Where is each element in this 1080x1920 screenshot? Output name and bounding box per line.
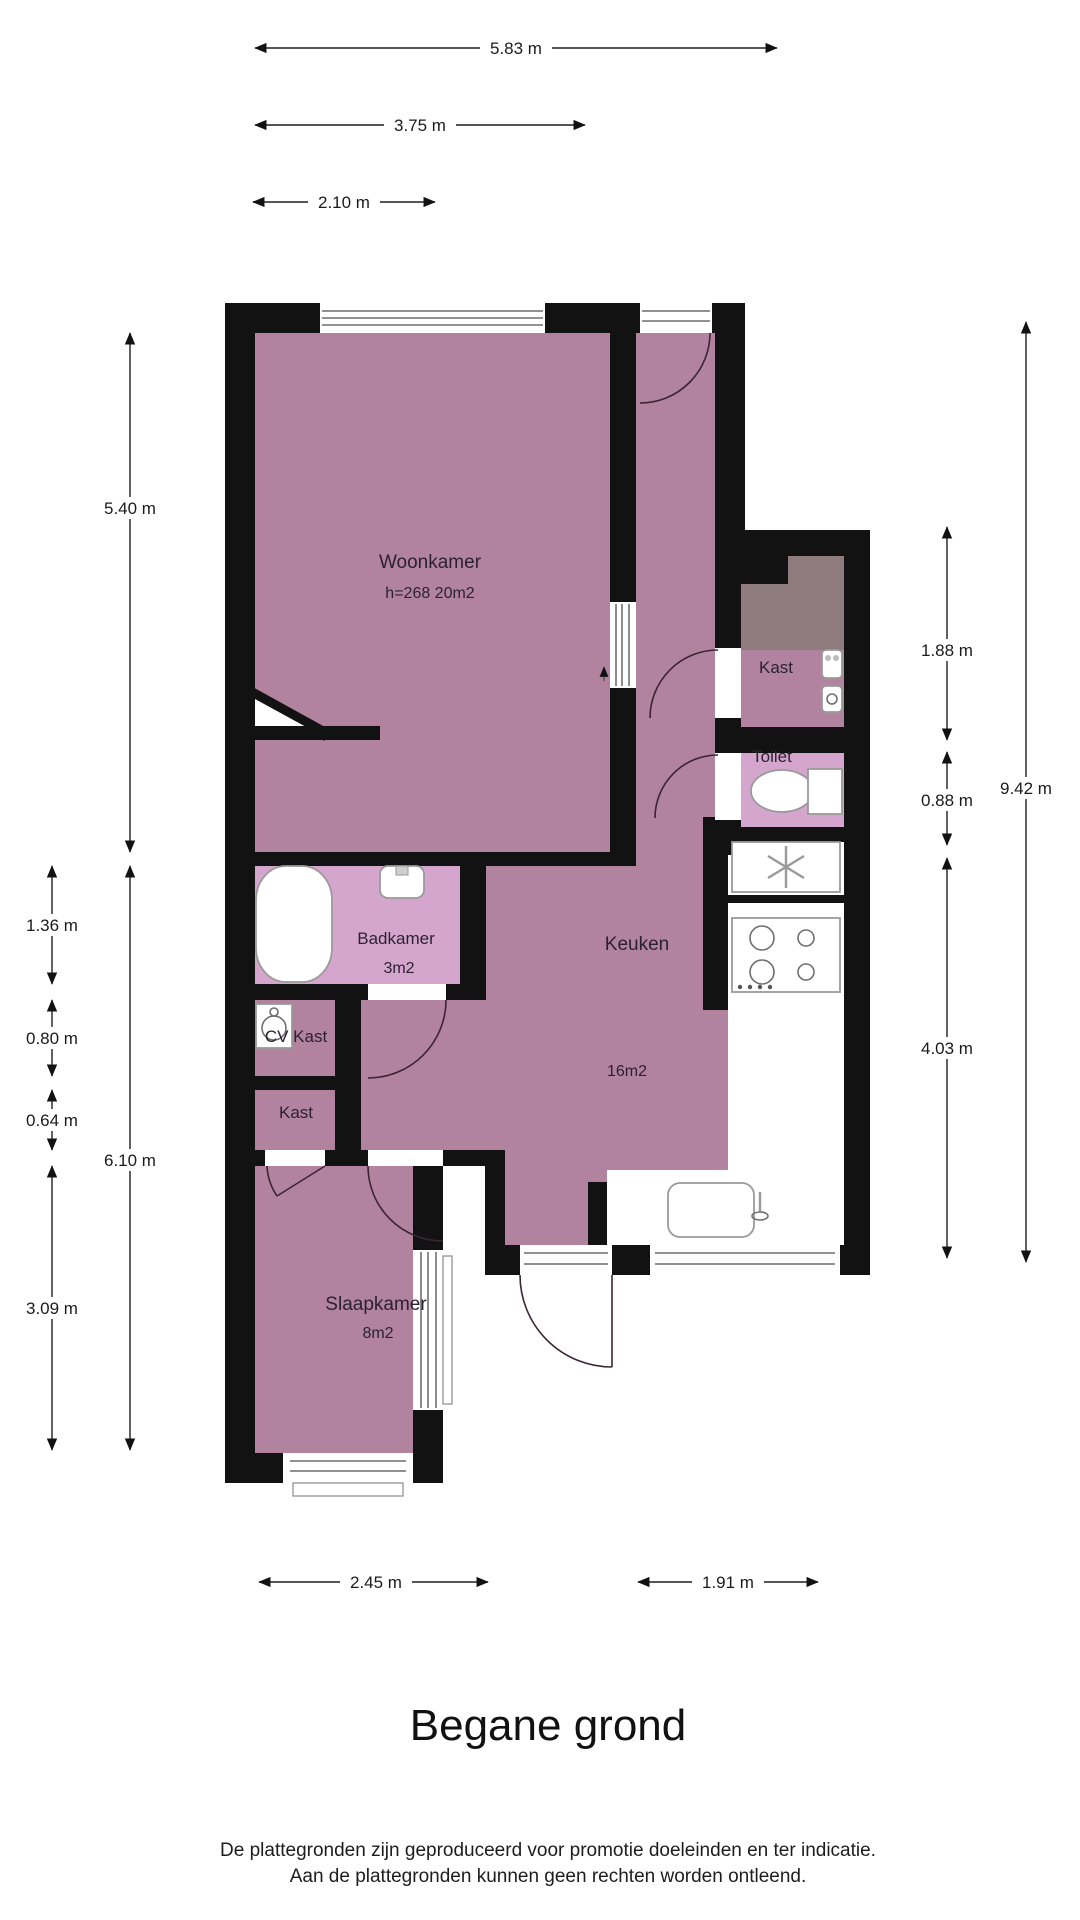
label-woonkamer-details: h=268 20m2 xyxy=(385,585,475,602)
wall-badkamer-bottom xyxy=(225,984,486,1000)
disclaimer-line-1: De plattegronden zijn geproduceerd voor … xyxy=(220,1840,876,1861)
svg-text:6.10 m: 6.10 m xyxy=(104,1151,156,1170)
dim-bottom-1-91: 1.91 m xyxy=(638,1571,818,1593)
label-woonkamer: Woonkamer xyxy=(379,552,482,573)
wall-kitchen-inner xyxy=(703,817,728,1010)
svg-text:2.10 m: 2.10 m xyxy=(318,193,370,212)
dim-right-1-88: 1.88 m xyxy=(911,527,983,740)
dim-left-0-80: 0.80 m xyxy=(16,1000,88,1076)
dim-right-0-88: 0.88 m xyxy=(911,752,983,845)
slaapkamer-window-bottom xyxy=(283,1453,413,1496)
kitchen-exterior-door xyxy=(520,1245,612,1367)
svg-text:0.88 m: 0.88 m xyxy=(921,791,973,810)
dim-left-6-10: 6.10 m xyxy=(94,866,166,1450)
wall-left xyxy=(225,303,255,1483)
svg-text:0.64 m: 0.64 m xyxy=(26,1111,78,1130)
kitchen-window xyxy=(650,1245,840,1275)
svg-text:5.40 m: 5.40 m xyxy=(104,499,156,518)
wall-under-fridge xyxy=(728,895,844,903)
label-cv-kast: CV Kast xyxy=(265,1027,328,1046)
dim-top-3-75: 3.75 m xyxy=(255,114,585,136)
dim-top-5-83: 5.83 m xyxy=(255,37,777,59)
dim-left-1-36: 1.36 m xyxy=(16,866,88,984)
slaapkamer-window-right xyxy=(413,1250,452,1410)
floorplan-page: Woonkamer h=268 20m2 Keuken 16m2 Slaapka… xyxy=(0,0,1080,1920)
wall-right-upper xyxy=(715,303,745,556)
floor-plan: Woonkamer h=268 20m2 Keuken 16m2 Slaapka… xyxy=(0,0,1080,1920)
hal-glazed-panel xyxy=(610,602,636,688)
svg-text:1.88 m: 1.88 m xyxy=(921,641,973,660)
label-keuken-area: 16m2 xyxy=(607,1063,647,1080)
svg-text:4.03 m: 4.03 m xyxy=(921,1039,973,1058)
svg-text:5.83 m: 5.83 m xyxy=(490,39,542,58)
floor-areas xyxy=(255,333,844,1453)
wall-extension-right xyxy=(844,530,870,1275)
dim-left-0-64: 0.64 m xyxy=(16,1090,88,1150)
svg-text:0.80 m: 0.80 m xyxy=(26,1029,78,1048)
disclaimer-line-2: Aan de plattegronden kunnen geen rechten… xyxy=(290,1866,807,1887)
toilet-fixture xyxy=(751,769,842,814)
dim-left-5-40: 5.40 m xyxy=(94,333,166,852)
woonkamer-window xyxy=(320,303,545,333)
wall-cv-right xyxy=(335,1000,361,1150)
page-title: Begane grond xyxy=(410,1701,686,1750)
wall-cv-kast-divider xyxy=(225,1076,361,1090)
label-slaapkamer-area: 8m2 xyxy=(362,1325,393,1342)
svg-text:3.75 m: 3.75 m xyxy=(394,116,446,135)
svg-text:3.09 m: 3.09 m xyxy=(26,1299,78,1318)
kitchen-sink xyxy=(668,1183,768,1237)
wall-woonkamer-bottom xyxy=(225,852,610,866)
wall-counter-stub xyxy=(588,1182,607,1245)
wall-kast-notch xyxy=(741,556,788,584)
wall-toilet-bottom xyxy=(728,827,844,842)
exterior-notch xyxy=(443,1166,485,1245)
label-kast: Kast xyxy=(759,658,793,677)
dim-top-2-10: 2.10 m xyxy=(253,191,435,213)
dim-right-4-03: 4.03 m xyxy=(911,858,983,1258)
dim-right-9-42: 9.42 m xyxy=(990,322,1062,1262)
bathroom-sink xyxy=(380,866,424,898)
label-toilet: Toilet xyxy=(752,747,792,766)
svg-text:1.36 m: 1.36 m xyxy=(26,916,78,935)
label-badkamer: Badkamer xyxy=(357,929,435,948)
dim-bottom-2-45: 2.45 m xyxy=(259,1571,488,1593)
label-badkamer-area: 3m2 xyxy=(383,960,414,977)
room-woonkamer-floor xyxy=(255,333,715,852)
label-slaapkamer: Slaapkamer xyxy=(325,1294,427,1315)
stove xyxy=(732,918,840,992)
svg-text:9.42 m: 9.42 m xyxy=(1000,779,1052,798)
label-kast-klein: Kast xyxy=(279,1103,313,1122)
label-keuken: Keuken xyxy=(605,934,669,955)
bathtub xyxy=(256,866,332,982)
wall-woonkamer-hal xyxy=(610,333,636,866)
fridge-snowflake-icon xyxy=(732,842,840,892)
dim-left-3-09: 3.09 m xyxy=(16,1166,88,1450)
svg-text:2.45 m: 2.45 m xyxy=(350,1573,402,1592)
wall-badkamer-right xyxy=(460,852,486,1000)
svg-text:1.91 m: 1.91 m xyxy=(702,1573,754,1592)
